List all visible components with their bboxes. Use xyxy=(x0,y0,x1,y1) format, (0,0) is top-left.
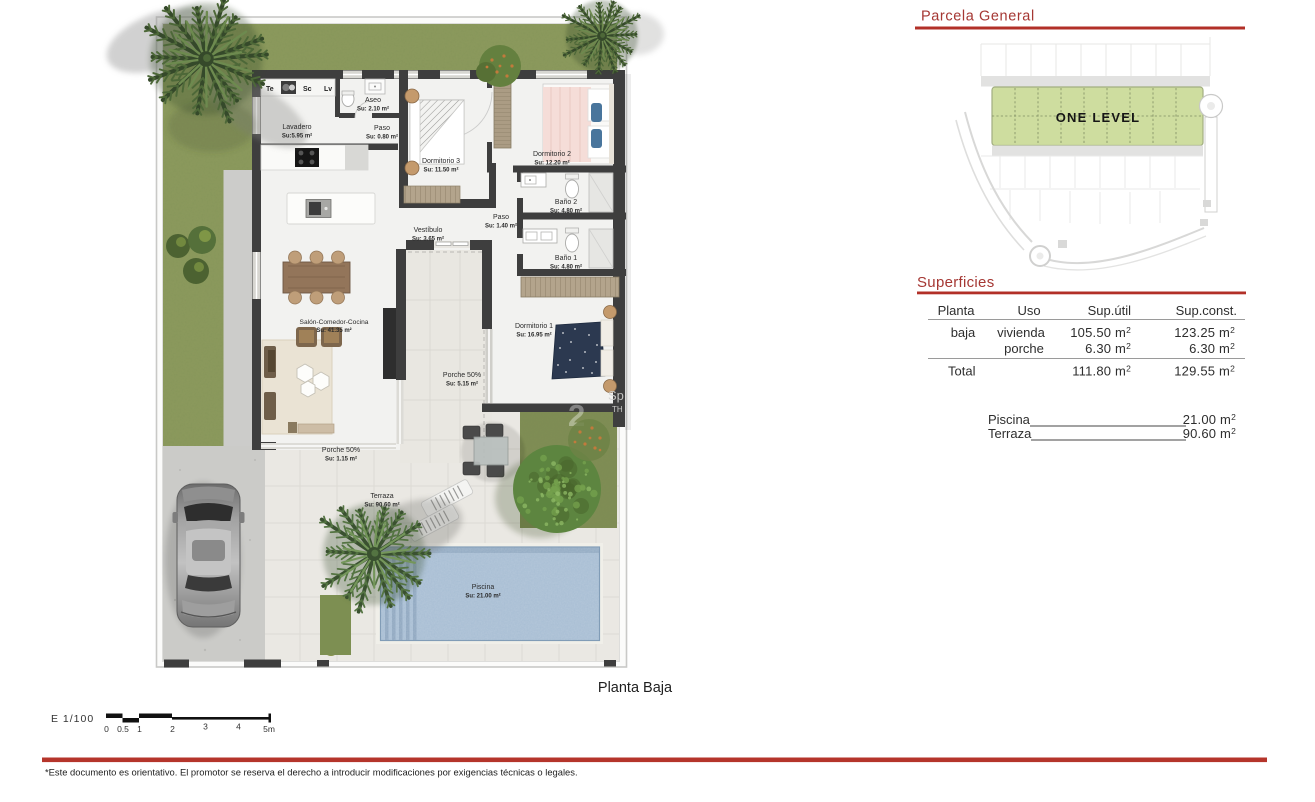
svg-text:123.25 m2: 123.25 m2 xyxy=(1174,325,1235,340)
svg-text:6.30 m2: 6.30 m2 xyxy=(1085,341,1131,356)
svg-text:*Este documento es orientativo: *Este documento es orientativo. El promo… xyxy=(45,767,578,778)
svg-text:Porche 50%: Porche 50% xyxy=(443,372,481,379)
svg-text:porche: porche xyxy=(1004,341,1044,356)
svg-text:Su: 5.15 m²: Su: 5.15 m² xyxy=(446,381,478,388)
svg-text:129.55 m2: 129.55 m2 xyxy=(1174,364,1235,379)
svg-text:Total: Total xyxy=(948,364,976,379)
svg-text:E 1/100: E 1/100 xyxy=(51,713,94,725)
svg-text:Su: 2.10 m²: Su: 2.10 m² xyxy=(357,106,389,113)
svg-text:2: 2 xyxy=(170,724,175,734)
svg-text:Sc: Sc xyxy=(303,86,312,93)
svg-text:vivienda: vivienda xyxy=(997,325,1045,340)
svg-text:Su: 1.15 m²: Su: 1.15 m² xyxy=(325,456,357,463)
svg-text:Paso: Paso xyxy=(374,125,390,132)
svg-text:TH: TH xyxy=(612,405,623,414)
svg-text:3: 3 xyxy=(203,722,208,732)
svg-text:21.00 m2: 21.00 m2 xyxy=(1183,412,1236,427)
svg-text:Terraza: Terraza xyxy=(988,426,1032,441)
svg-text:1: 1 xyxy=(137,724,142,734)
svg-text:Su: 11.50 m²: Su: 11.50 m² xyxy=(423,167,458,174)
svg-text:Lavadero: Lavadero xyxy=(282,124,311,131)
svg-text:Su: 21.00 m²: Su: 21.00 m² xyxy=(465,593,500,600)
svg-text:Baño 2: Baño 2 xyxy=(555,199,577,206)
svg-text:Lv: Lv xyxy=(324,86,332,93)
svg-text:Su: 12.20 m²: Su: 12.20 m² xyxy=(534,160,569,167)
svg-text:Planta: Planta xyxy=(938,303,976,318)
svg-text:Su: 41.35 m²: Su: 41.35 m² xyxy=(316,327,351,334)
svg-text:Planta Baja: Planta Baja xyxy=(598,680,673,696)
svg-text:Porche 50%: Porche 50% xyxy=(322,447,360,454)
svg-text:Paso: Paso xyxy=(493,214,509,221)
svg-text:Uso: Uso xyxy=(1017,303,1040,318)
svg-text:Su: 4.80 m²: Su: 4.80 m² xyxy=(550,264,582,271)
svg-text:Sup.útil: Sup.útil xyxy=(1088,303,1131,318)
svg-text:6.30 m2: 6.30 m2 xyxy=(1189,341,1235,356)
svg-text:Dormitorio 1: Dormitorio 1 xyxy=(515,323,553,330)
svg-text:111.80 m2: 111.80 m2 xyxy=(1072,364,1131,379)
svg-text:Sup.const.: Sup.const. xyxy=(1176,303,1237,318)
svg-text:Piscina: Piscina xyxy=(472,584,495,591)
svg-text:Dormitorio 2: Dormitorio 2 xyxy=(533,151,571,158)
svg-text:Terraza: Terraza xyxy=(370,493,393,500)
svg-text:Vestíbulo: Vestíbulo xyxy=(414,227,443,234)
svg-text:Su: 4.80 m²: Su: 4.80 m² xyxy=(550,208,582,215)
svg-text:Salón-Comedor-Cocina: Salón-Comedor-Cocina xyxy=(300,319,369,326)
svg-text:5m: 5m xyxy=(263,724,275,734)
svg-text:Su: 3.65 m²: Su: 3.65 m² xyxy=(412,236,444,243)
svg-text:Baño 1: Baño 1 xyxy=(555,255,577,262)
svg-text:0.5: 0.5 xyxy=(117,724,129,734)
svg-text:Su: 1.40 m²: Su: 1.40 m² xyxy=(485,223,517,230)
svg-text:Su: 16.95 m²: Su: 16.95 m² xyxy=(516,332,551,339)
svg-text:90.60 m2: 90.60 m2 xyxy=(1183,426,1236,441)
svg-text:baja: baja xyxy=(951,325,976,340)
svg-text:ONE LEVEL: ONE LEVEL xyxy=(1056,110,1140,125)
svg-text:Su: 0.80 m²: Su: 0.80 m² xyxy=(366,134,398,141)
svg-text:Aseo: Aseo xyxy=(365,97,381,104)
svg-text:Dormitorio 3: Dormitorio 3 xyxy=(422,158,460,165)
svg-text:0: 0 xyxy=(104,724,109,734)
svg-text:Su: 90.60 m²: Su: 90.60 m² xyxy=(364,502,399,509)
svg-text:Sp: Sp xyxy=(608,388,624,403)
svg-text:4: 4 xyxy=(236,722,241,732)
svg-text:Superficies: Superficies xyxy=(917,274,995,291)
svg-text:105.50 m2: 105.50 m2 xyxy=(1070,325,1131,340)
svg-text:Piscina: Piscina xyxy=(988,412,1031,427)
svg-text:Parcela General: Parcela General xyxy=(921,9,1035,25)
svg-text:Su:5.95 m²: Su:5.95 m² xyxy=(282,133,312,140)
